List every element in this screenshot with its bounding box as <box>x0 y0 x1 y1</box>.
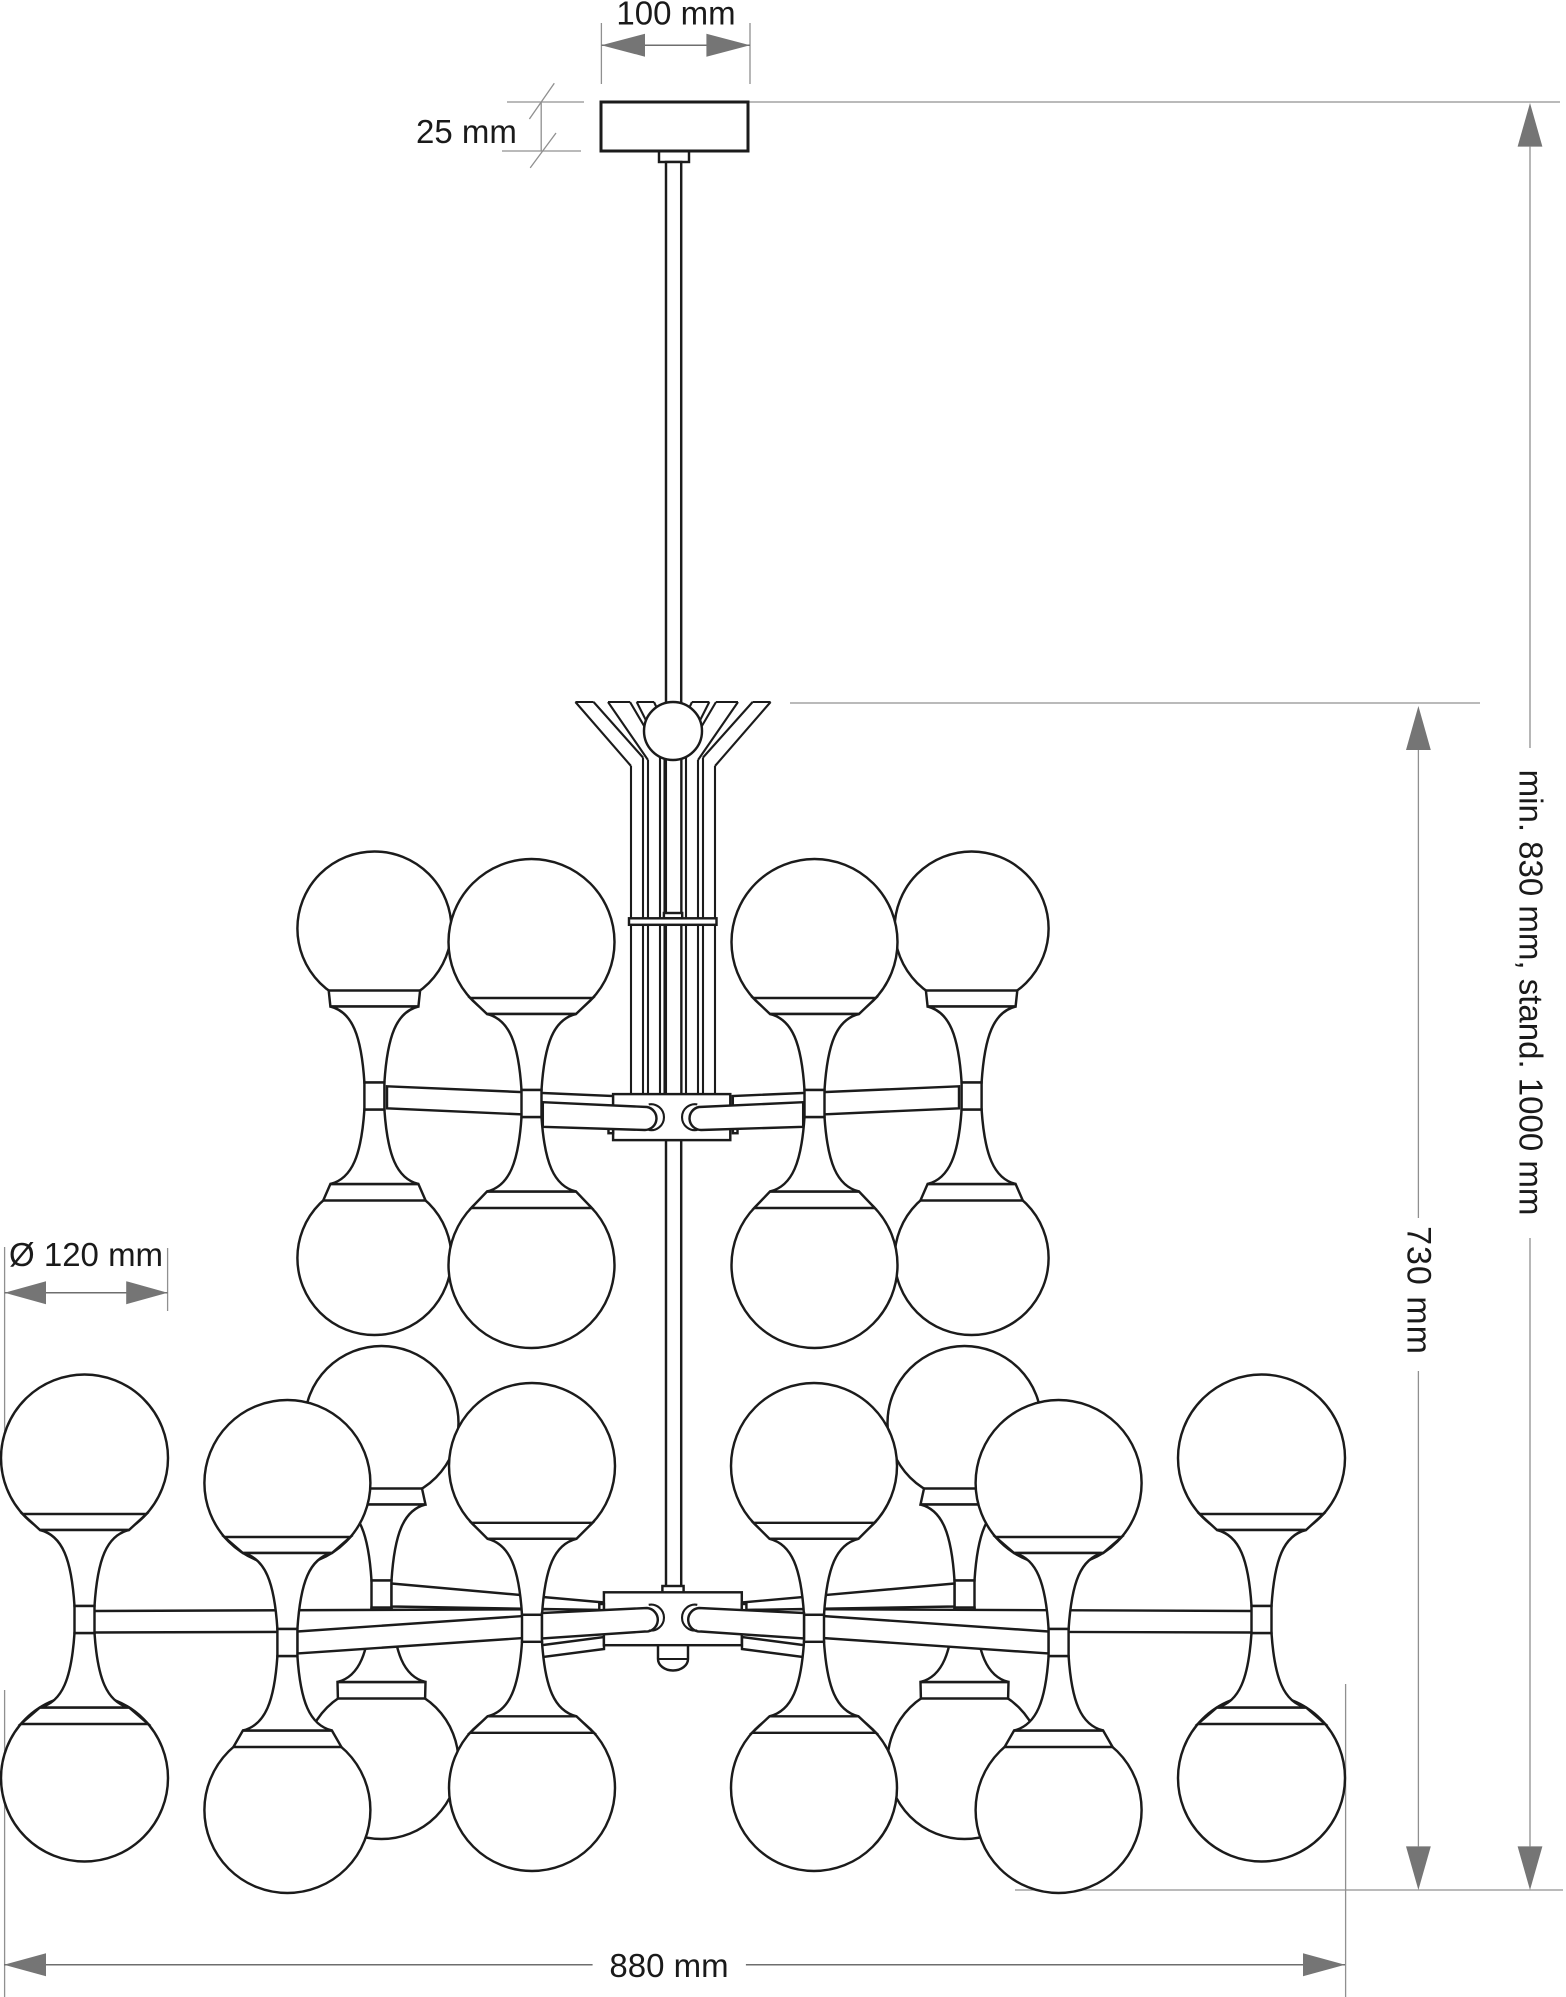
svg-text:25 mm: 25 mm <box>416 113 517 150</box>
svg-text:100 mm: 100 mm <box>616 0 735 32</box>
svg-text:Ø 120 mm: Ø 120 mm <box>9 1236 163 1273</box>
svg-text:min. 830 mm, stand. 1000 mm: min. 830 mm, stand. 1000 mm <box>1513 770 1550 1216</box>
svg-text:880 mm: 880 mm <box>609 1947 728 1984</box>
svg-text:730 mm: 730 mm <box>1400 1226 1438 1355</box>
